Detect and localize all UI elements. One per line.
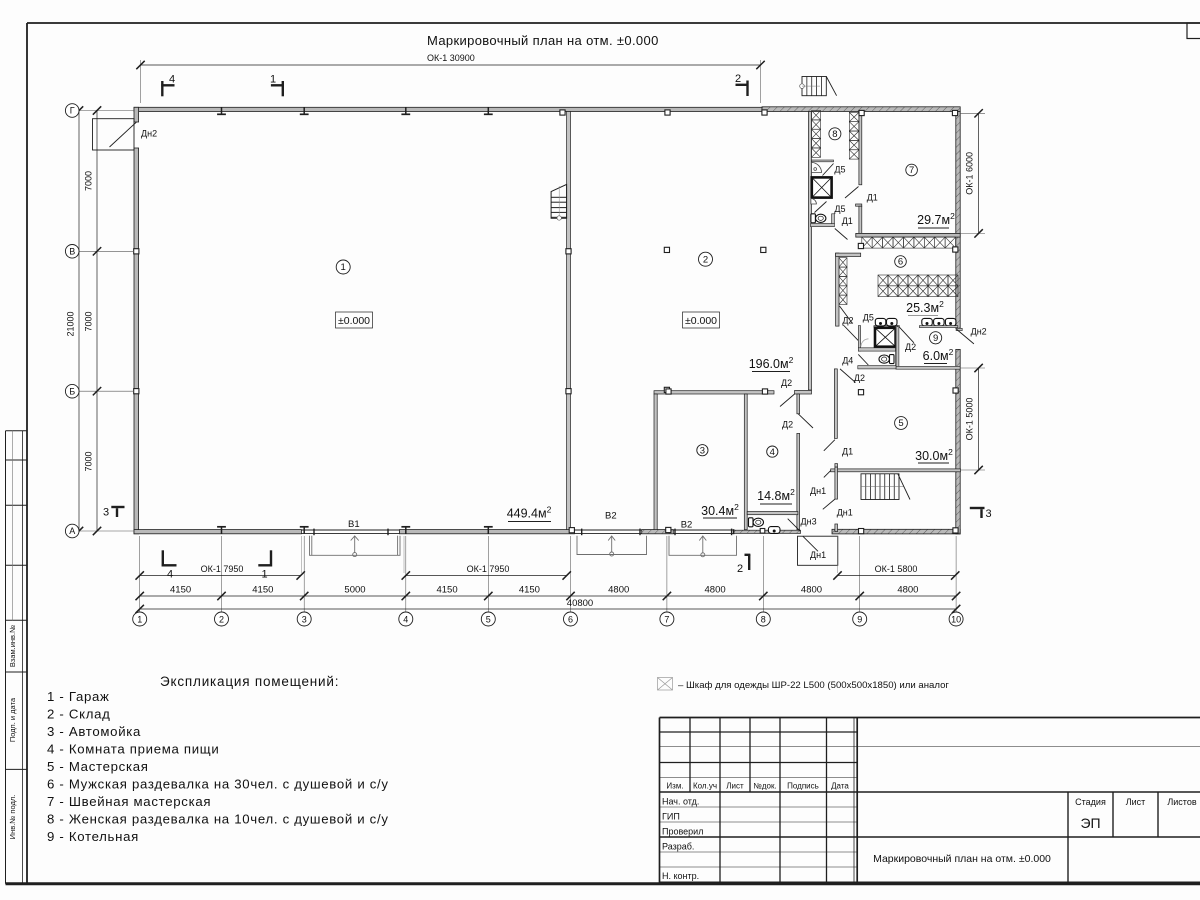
svg-text:Б: Б: [69, 386, 75, 396]
svg-text:В1: В1: [348, 519, 360, 530]
svg-text:Дн2: Дн2: [971, 327, 987, 337]
svg-text:9: 9: [933, 333, 938, 344]
svg-text:ОК-1 7950: ОК-1 7950: [201, 564, 244, 574]
svg-text:3 - Автомойка: 3 - Автомойка: [47, 724, 141, 739]
svg-text:2: 2: [703, 254, 708, 265]
svg-text:10: 10: [951, 614, 961, 624]
svg-text:6 - Мужская раздевалка на 30че: 6 - Мужская раздевалка на 30чел. с душев…: [47, 777, 389, 792]
svg-text:4150: 4150: [519, 585, 540, 596]
svg-text:В2: В2: [681, 519, 693, 530]
svg-text:40800: 40800: [567, 598, 593, 609]
svg-text:14.8м2: 14.8м2: [757, 487, 795, 503]
svg-text:Подпись: Подпись: [787, 782, 819, 791]
svg-text:1: 1: [137, 614, 142, 624]
svg-text:Д1: Д1: [842, 447, 853, 457]
svg-text:Листов: Листов: [1167, 797, 1196, 807]
svg-text:ОК-1 30900: ОК-1 30900: [427, 53, 475, 63]
svg-text:Д5: Д5: [863, 313, 874, 323]
svg-text:Маркировочный план на отм. ±0.: Маркировочный план на отм. ±0.000: [427, 33, 659, 48]
svg-text:21000: 21000: [66, 311, 76, 336]
svg-text:3: 3: [103, 507, 109, 519]
svg-text:Маркировочный план на отм. ±0.: Маркировочный план на отм. ±0.000: [873, 853, 1051, 865]
svg-text:30.4м2: 30.4м2: [701, 502, 739, 518]
svg-text:ОК-1 6000: ОК-1 6000: [965, 152, 975, 195]
svg-text:Дн1: Дн1: [810, 550, 826, 560]
svg-text:ГИП: ГИП: [662, 812, 680, 822]
svg-text:Дн3: Дн3: [801, 517, 817, 527]
svg-text:Д5: Д5: [834, 204, 845, 214]
svg-text:Д5: Д5: [834, 165, 845, 175]
svg-text:29.7м2: 29.7м2: [917, 211, 955, 227]
svg-text:ЭП: ЭП: [1080, 815, 1100, 831]
svg-text:ОК-1 7950: ОК-1 7950: [467, 564, 510, 574]
svg-text:Лист: Лист: [1126, 797, 1146, 807]
svg-text:5000: 5000: [344, 585, 365, 596]
svg-text:4 - Комната приема пищи: 4 - Комната приема пищи: [47, 742, 219, 757]
svg-text:4150: 4150: [436, 585, 457, 596]
svg-text:2 - Склад: 2 - Склад: [47, 707, 111, 722]
svg-text:Стадия: Стадия: [1075, 797, 1106, 807]
svg-text:±0.000: ±0.000: [338, 315, 370, 327]
svg-text:Проверил: Проверил: [662, 827, 703, 837]
svg-text:4150: 4150: [170, 585, 191, 596]
svg-text:4: 4: [167, 569, 173, 581]
svg-text:7: 7: [909, 165, 914, 176]
svg-text:4800: 4800: [801, 585, 822, 596]
svg-text:Д2: Д2: [782, 420, 793, 430]
svg-text:4800: 4800: [705, 585, 726, 596]
svg-text:9 - Котельная: 9 - Котельная: [47, 829, 139, 844]
svg-text:№док.: №док.: [753, 782, 776, 791]
svg-text:Д1: Д1: [867, 193, 878, 203]
svg-text:Инв.№ подл.: Инв.№ подл.: [8, 795, 17, 840]
svg-text:25.3м2: 25.3м2: [906, 299, 944, 315]
svg-text:ОК-1 5000: ОК-1 5000: [965, 398, 975, 441]
svg-text:4800: 4800: [897, 585, 918, 596]
svg-text:Экспликация помещений:: Экспликация помещений:: [160, 674, 339, 689]
svg-text:Изм.: Изм.: [666, 782, 683, 791]
svg-text:8: 8: [832, 129, 837, 140]
svg-text:3: 3: [985, 508, 991, 520]
svg-text:Взам.инв.№: Взам.инв.№: [8, 625, 17, 667]
svg-text:Д2: Д2: [905, 342, 916, 352]
svg-text:1: 1: [270, 74, 276, 86]
svg-text:3: 3: [700, 445, 705, 456]
svg-text:196.0м2: 196.0м2: [749, 355, 794, 371]
svg-text:Дата: Дата: [831, 782, 849, 791]
svg-text:Д1: Д1: [842, 216, 853, 226]
svg-text:7: 7: [664, 614, 669, 624]
svg-text:4800: 4800: [608, 585, 629, 596]
svg-text:Дн1: Дн1: [810, 486, 826, 496]
svg-text:5 - Мастерская: 5 - Мастерская: [47, 759, 149, 774]
svg-text:– Шкаф для одежды ШР-22 L500 (: – Шкаф для одежды ШР-22 L500 (500х500х18…: [678, 680, 949, 691]
svg-text:4: 4: [169, 74, 175, 86]
svg-text:Д4: Д4: [842, 356, 853, 366]
svg-text:7000: 7000: [84, 171, 94, 191]
svg-text:4150: 4150: [252, 585, 273, 596]
svg-text:7 - Швейная мастерская: 7 - Швейная мастерская: [47, 794, 211, 809]
svg-text:Г: Г: [70, 106, 75, 116]
svg-text:8: 8: [761, 614, 766, 624]
svg-text:ОК-1 5800: ОК-1 5800: [875, 564, 918, 574]
svg-text:Подп. и дата: Подп. и дата: [8, 697, 17, 742]
svg-text:Разраб.: Разраб.: [662, 842, 694, 852]
svg-text:2: 2: [737, 563, 743, 575]
svg-text:1: 1: [341, 262, 346, 273]
svg-text:А: А: [69, 526, 75, 536]
svg-text:6: 6: [568, 614, 573, 624]
svg-text:4: 4: [770, 447, 775, 458]
svg-text:Д2: Д2: [842, 316, 853, 326]
svg-text:±0.000: ±0.000: [685, 315, 717, 327]
svg-text:Н. контр.: Н. контр.: [662, 871, 699, 881]
svg-text:Д2: Д2: [781, 378, 792, 388]
svg-text:1: 1: [261, 569, 267, 581]
svg-text:9: 9: [857, 614, 862, 624]
svg-text:В: В: [69, 247, 75, 257]
svg-text:6: 6: [898, 257, 903, 268]
svg-text:Д2: Д2: [854, 373, 865, 383]
svg-text:В2: В2: [605, 511, 617, 522]
svg-text:5: 5: [898, 418, 903, 429]
svg-text:7000: 7000: [84, 451, 94, 471]
svg-text:449.4м2: 449.4м2: [507, 505, 552, 521]
svg-text:7000: 7000: [84, 311, 94, 331]
svg-text:30.0м2: 30.0м2: [915, 447, 953, 463]
svg-text:1 - Гараж: 1 - Гараж: [47, 689, 110, 704]
svg-text:4: 4: [403, 614, 408, 624]
svg-text:5: 5: [486, 614, 491, 624]
svg-text:2: 2: [735, 73, 741, 85]
svg-text:Нач. отд.: Нач. отд.: [662, 797, 699, 807]
svg-text:8 - Женская раздевалка на 10че: 8 - Женская раздевалка на 10чел. с душев…: [47, 812, 389, 827]
svg-text:Дн1: Дн1: [837, 508, 853, 518]
svg-text:Дн2: Дн2: [141, 129, 157, 139]
svg-text:Кол.уч: Кол.уч: [693, 782, 717, 791]
svg-text:Лист: Лист: [726, 782, 744, 791]
svg-text:3: 3: [302, 614, 307, 624]
svg-text:2: 2: [219, 614, 224, 624]
